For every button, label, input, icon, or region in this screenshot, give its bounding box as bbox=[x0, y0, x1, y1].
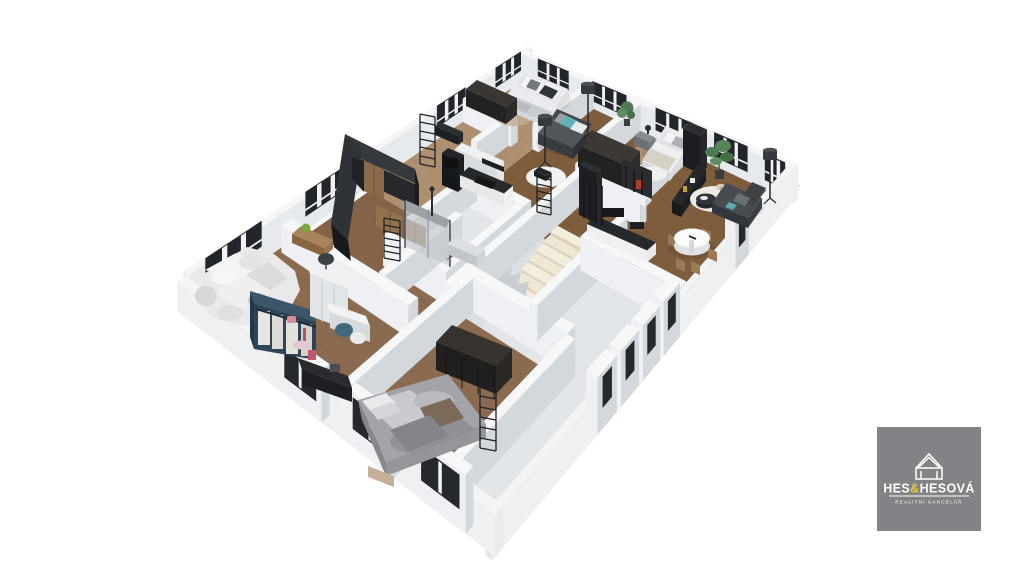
svg-text:HES&HESOVÁ: HES&HESOVÁ bbox=[883, 481, 975, 496]
